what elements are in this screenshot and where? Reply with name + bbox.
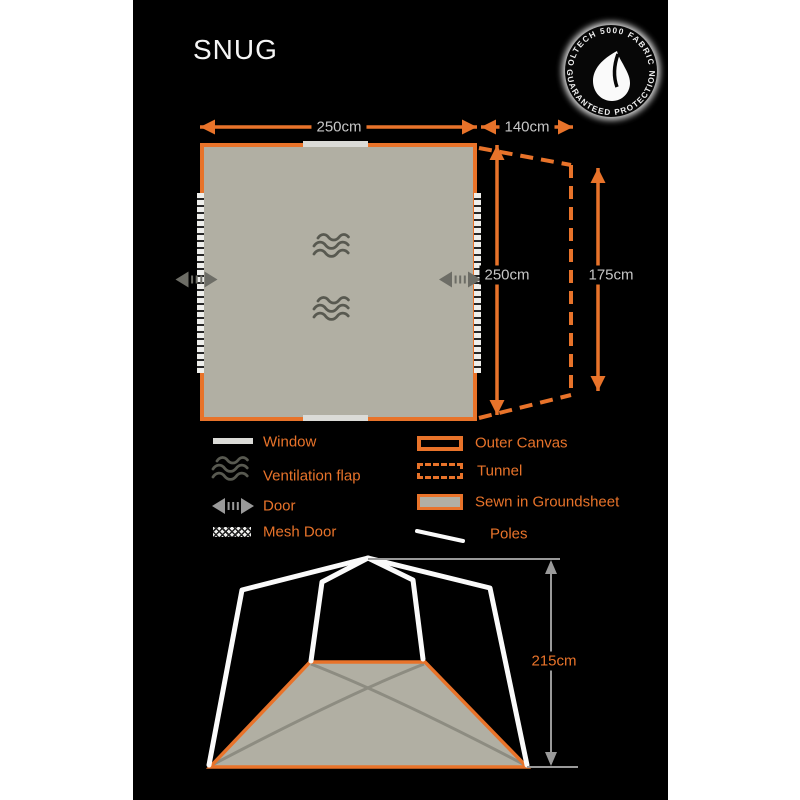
dim-height-label: 215cm (526, 652, 581, 671)
page-background: { "title": "SNUG", "badge": { "arc_top":… (0, 0, 800, 800)
legend-poles-icon (417, 531, 463, 541)
legend-groundsheet-icon (417, 494, 463, 510)
legend-tunnel-icon (417, 463, 463, 479)
dim-depth-label: 250cm (479, 266, 534, 285)
legend-label-door: Door (263, 498, 296, 515)
door-icon-left (176, 272, 218, 288)
legend-ventilation-icon (213, 458, 247, 480)
legend-mesh-door-icon (213, 527, 251, 537)
dim-tunnel-end-label: 175cm (583, 266, 638, 285)
legend-label-groundsheet: Sewn in Groundsheet (475, 494, 619, 511)
door-icon-right (439, 272, 481, 288)
legend-label-poles: Poles (490, 526, 528, 543)
diagram-overlay (133, 0, 668, 800)
legend-label-window: Window (263, 434, 316, 451)
legend-label-ventilation-flap: Ventilation flap (263, 468, 361, 485)
diagram-canvas: SNUG OLTECH 5000 FABRIC GUARANTEED PROTE… (133, 0, 668, 800)
legend-label-outer-canvas: Outer Canvas (475, 435, 568, 452)
dim-tunnel-label: 140cm (499, 118, 554, 137)
legend-window-icon (213, 438, 253, 444)
ventilation-icon-2 (314, 298, 348, 320)
legend-door-icon (212, 498, 254, 514)
front-view (209, 558, 578, 767)
ventilation-icon-1 (314, 235, 348, 257)
legend-outer-canvas-icon (417, 436, 463, 451)
legend-label-mesh-door: Mesh Door (263, 524, 336, 541)
groundsheet-front (210, 662, 527, 767)
legend-label-tunnel: Tunnel (477, 463, 522, 480)
dim-width-label: 250cm (311, 118, 366, 137)
